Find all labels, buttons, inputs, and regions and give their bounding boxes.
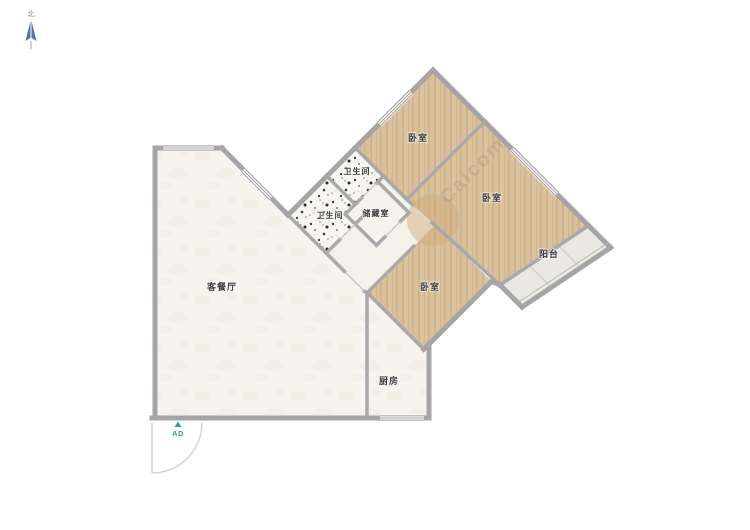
label-bathroom-lower: 卫生间	[317, 210, 344, 220]
ad-marker-label: AD	[172, 429, 184, 438]
label-living-dining: 客餐厅	[206, 281, 237, 292]
floorplan-canvas: 卧室 卧室 卧室 卫生间 卫生间 储藏室 阳台 客餐厅 厨房 AD 北 Caic…	[0, 0, 750, 530]
label-storage: 储藏室	[362, 208, 390, 218]
label-kitchen: 厨房	[379, 375, 399, 386]
label-bathroom-upper: 卫生间	[344, 166, 371, 176]
ad-marker-icon	[175, 422, 182, 428]
window-kitchen	[380, 416, 424, 420]
label-bedroom-top: 卧室	[408, 132, 428, 143]
label-bedroom-lower: 卧室	[420, 281, 440, 292]
window-living-top	[163, 146, 214, 150]
label-balcony: 阳台	[539, 248, 559, 259]
compass-label: 北	[28, 10, 35, 18]
label-bedroom-right: 卧室	[482, 192, 502, 203]
compass-icon: 北	[26, 10, 37, 49]
ad-marker: AD	[172, 422, 184, 439]
floorplan-svg: 卧室 卧室 卧室 卫生间 卫生间 储藏室 阳台 客餐厅 厨房 AD 北 Caic…	[0, 0, 750, 530]
